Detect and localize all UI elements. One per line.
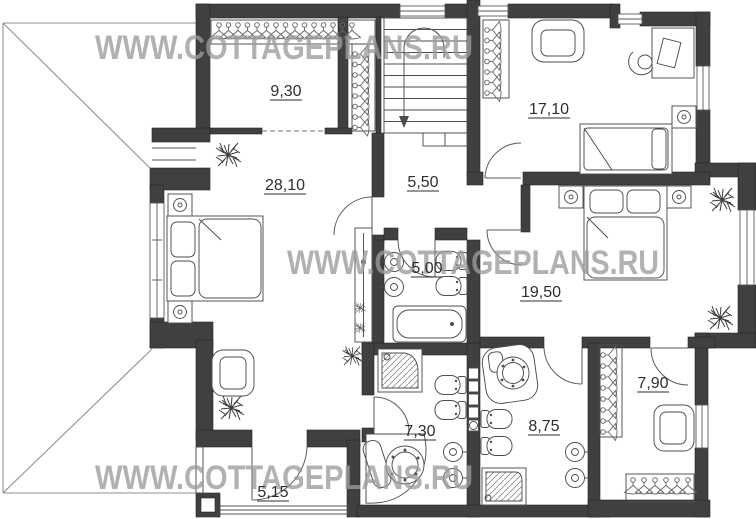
bed-single-icon [580,124,672,174]
room-area-label-bedroom-top: 17,10 [529,101,569,118]
plant-icon [216,143,241,167]
armchair-icon [654,405,694,451]
room-area-label-wardrobe: 9,30 [270,83,301,100]
floor-plan: WWW.COTTAGEPLANS.RU WWW.COTTAGEPLANS.RU … [0,0,756,519]
room-area-label-balcony: 5,15 [257,484,288,501]
room-area-label-master: 28,10 [265,177,305,194]
room-area-label-master-bath: 7,30 [404,423,435,440]
floor-plan-image: WWW.COTTAGEPLANS.RU WWW.COTTAGEPLANS.RU … [0,0,756,519]
stairs-down-arrow [399,116,409,128]
room-area-label-bath-right: 8,75 [528,418,559,435]
bed-double-icon [167,216,263,301]
pillow-icon [590,190,623,213]
hangers-column-icon [601,347,617,441]
room-area-label-bath-center: 5,00 [411,260,442,277]
desk-chair-icon [629,52,653,75]
pillow-icon [627,190,660,213]
window-top-bedroom-right [618,14,642,24]
pillow-icon [652,129,666,169]
desk-icon [652,28,694,78]
window-dressing-room [696,405,708,448]
room-area-label-dressing: 7,90 [637,375,668,392]
shower-icon [482,468,526,505]
hangers-column-icon [485,22,501,102]
hangers-row-icon [625,478,697,494]
plant-icon [710,188,735,212]
pillow-icon [171,261,195,296]
window-right-bedroom-top [697,66,709,110]
plant-icon [342,346,362,365]
plumbing-wall-shelf [469,368,479,431]
window-top-bedroom-left [478,6,508,16]
bathtub-icon [393,306,466,342]
armchair-icon [212,350,254,396]
watermark-text: WWW.COTTAGEPLANS.RU [287,244,659,282]
room-dressing-right [600,345,697,502]
door-bedroom-to-bathroom-right [544,348,582,384]
plant-icon [219,396,244,420]
window-master-bay [150,203,164,318]
room-bedroom-top-right [483,20,696,174]
window-right-nook [740,210,754,285]
watermark-text: WWW.COTTAGEPLANS.RU [95,29,473,67]
pillow-icon [171,222,195,257]
window-left-step [152,148,196,160]
plant-icon [708,306,733,330]
spa-tub-icon [480,343,539,406]
door-to-bedroom-top-right [485,143,521,178]
shower-icon [378,349,422,392]
room-area-label-hall: 5,50 [407,174,438,191]
room-area-label-bedroom-right: 19,50 [521,284,561,301]
armchair-icon [532,20,584,62]
window-above-stairs [400,6,445,16]
